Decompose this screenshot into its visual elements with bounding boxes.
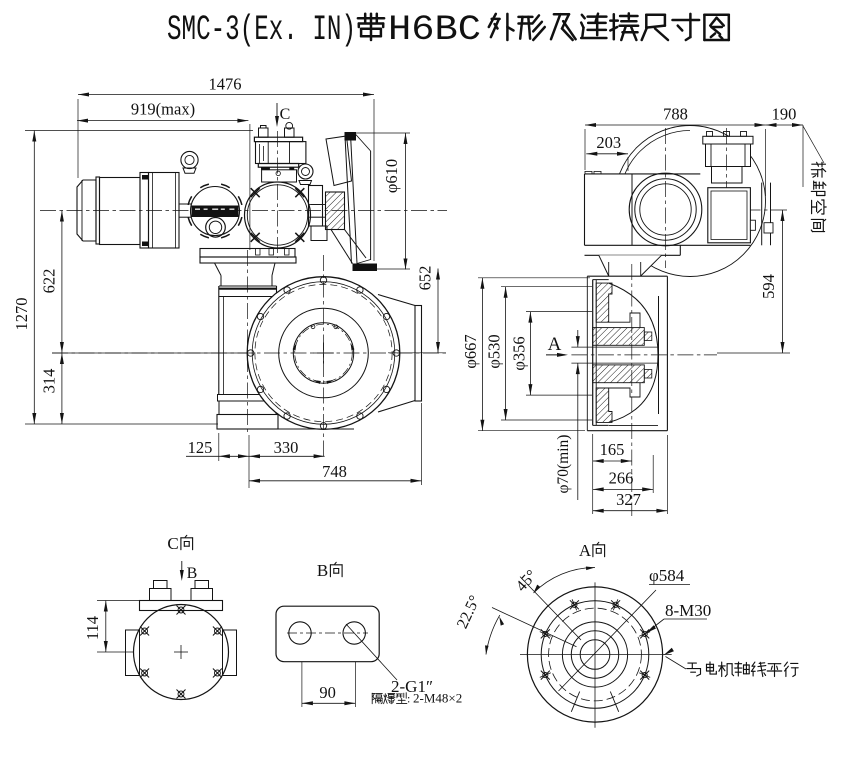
svg-text:919(max): 919(max) <box>131 100 195 119</box>
svg-text:594: 594 <box>759 274 778 299</box>
svg-text:165: 165 <box>600 440 625 459</box>
svg-text:748: 748 <box>322 462 347 481</box>
svg-text:φ70(min): φ70(min) <box>555 435 572 494</box>
svg-text:788: 788 <box>663 105 688 124</box>
svg-text:327: 327 <box>616 490 641 509</box>
svg-text:φ610: φ610 <box>382 159 401 193</box>
svg-text:1270: 1270 <box>12 298 31 331</box>
svg-text:φ584: φ584 <box>649 566 685 585</box>
svg-text:330: 330 <box>274 438 299 457</box>
svg-text:2-M48×2: 2-M48×2 <box>413 691 462 706</box>
svg-text:B: B <box>317 561 328 580</box>
svg-text:190: 190 <box>772 105 797 124</box>
svg-text:SMC-3(Ex. IN): SMC-3(Ex. IN) <box>167 10 356 50</box>
svg-text:B: B <box>187 565 198 582</box>
svg-text:C: C <box>280 106 291 123</box>
svg-text:114: 114 <box>83 616 102 640</box>
svg-text:C: C <box>167 534 178 553</box>
svg-text:125: 125 <box>188 438 213 457</box>
svg-text:90: 90 <box>319 683 336 702</box>
svg-text::: : <box>407 692 410 706</box>
svg-text:A: A <box>548 334 562 355</box>
svg-text:8-M30: 8-M30 <box>665 601 711 620</box>
svg-text:φ356: φ356 <box>510 336 529 370</box>
svg-text:203: 203 <box>596 133 621 152</box>
svg-text:φ530: φ530 <box>485 334 504 368</box>
svg-text:314: 314 <box>40 369 59 394</box>
svg-text:H6BC: H6BC <box>388 10 481 50</box>
svg-text:φ667: φ667 <box>461 334 480 368</box>
svg-text:A: A <box>579 541 592 560</box>
svg-text:1476: 1476 <box>209 75 242 94</box>
svg-text:652: 652 <box>416 266 435 291</box>
svg-text:622: 622 <box>40 269 59 294</box>
svg-text:266: 266 <box>609 469 634 488</box>
